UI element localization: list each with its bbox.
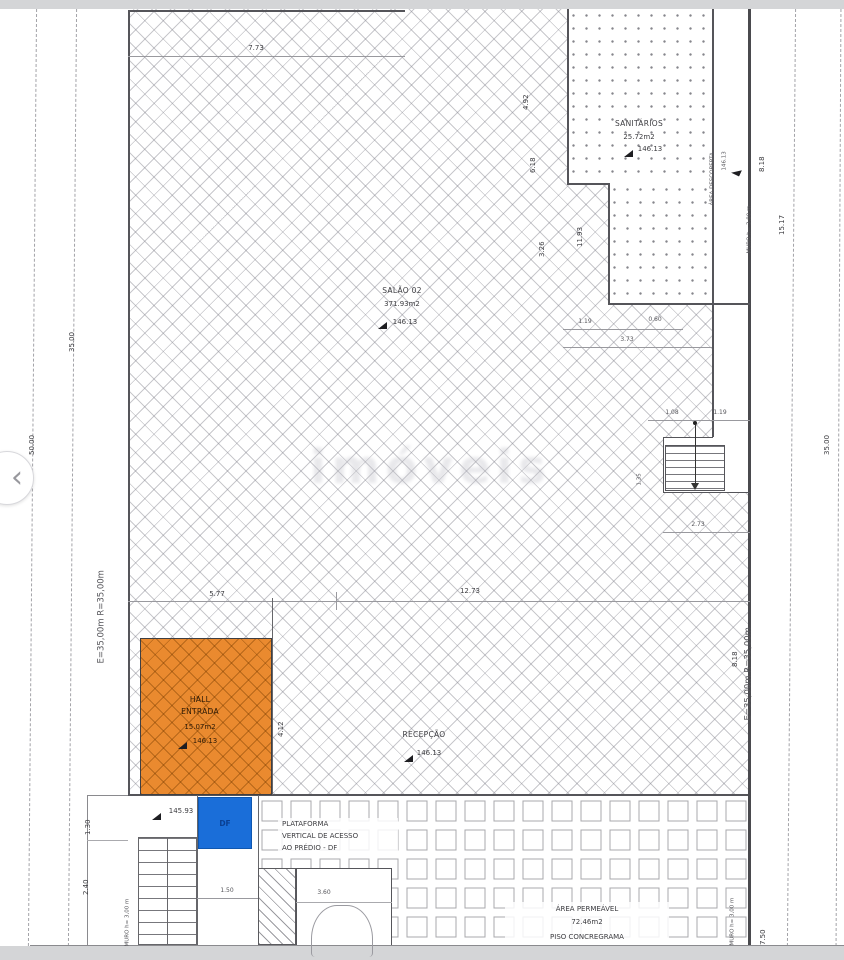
wall-landing-top [663,437,713,438]
sanitarios-floor-dots-lower [608,183,712,303]
wall-sanitarios-left-lower [608,183,610,303]
dim-3-73: 3.73 [612,337,642,343]
dim-8-18a: 8.18 [759,156,766,172]
lot-dim-left-inner: 35.00 [69,332,76,352]
dim-1-35: 1.35 [638,473,644,485]
dimline-108-119 [648,420,750,421]
level-recepcao: 146.13 [414,750,444,757]
dim-1-50: 1.50 [212,888,242,894]
dim-1-08: 1.08 [658,410,686,416]
access-ramp [258,868,296,945]
muro-label-bottom-right: MURO h= 3,00 m [731,898,737,946]
wall-sanitarios-jog [567,183,609,185]
muro-label-top: MURO h= 3,00 m [748,206,754,254]
dim-7-73: 7.73 [236,45,276,52]
platform-df-label: DF [219,819,230,828]
level-sanitarios: 146.13 [635,146,665,153]
dimline-150 [197,898,258,899]
watermark: imóveis [310,440,552,494]
boundary-label-left: E=35,00m R=35,00m [98,570,107,663]
lot-dim-left-outer: 50.00 [29,435,36,455]
lot-line-right-outer [836,9,842,946]
dim-2-73: 2.73 [684,522,712,528]
wall-descoberta-left [712,9,714,437]
dim-5-77: 5.77 [200,591,234,598]
stair-right-arrow-origin [693,421,697,425]
plataforma-label-3: AO PRÉDIO - DF [282,845,337,852]
level-calcada: 145.93 [164,808,198,815]
level-salao: 146.13 [390,319,420,326]
level-descoberta: 146.13 [723,151,729,170]
sanitarios-floor-dots-upper [567,9,712,183]
wall-corridor-left [197,795,198,945]
platform-df: DF [198,797,252,849]
wall-top [128,10,405,12]
lot-line-left-inner [68,9,77,946]
room-area-sanitarios: 25.72m2 [599,134,679,141]
wall-landing-bottom [663,492,750,493]
dimline-373 [563,347,712,348]
dimline-273 [663,532,750,533]
dim-3-60: 3.60 [306,890,342,896]
stair-right-arrowhead-icon [691,483,699,490]
level-hall: 146.13 [190,738,220,745]
wall-left [128,10,130,795]
dim-1-30: 1.30 [85,819,92,835]
lot-line-right-inner [787,9,796,946]
dim-12-73: 12.73 [450,588,490,595]
chevron-left-icon: ‹ [11,463,23,493]
piso-concregrama-label: PISO CONCREGRAMA [497,934,677,941]
wall-sanitarios-left [567,9,569,183]
room-area-hall: 15.07m2 [160,724,240,731]
room-label-sanitarios: SANITÁRIOS [599,120,679,128]
room-area-salao: 371.93m2 [357,301,447,308]
room-label-hall-1: HALL [160,696,240,704]
dimline-middle [128,601,750,602]
room-label-descoberta: ÁREA DESCOBERTA [711,152,717,205]
floorplan-image: 35.00 50.00 35.00 7.73 4.92 6.18 3.26 11… [0,0,844,960]
wall-hall-right [272,598,273,795]
room-label-recepcao: RECEPÇÃO [384,731,464,739]
area-descoberta-floor [712,9,749,437]
dim-8-18b: 8.18 [732,651,739,667]
top-gray-bar [0,0,844,9]
fence-tick-1 [87,795,128,796]
permeavel-label: ÁREA PERMEÁVEL [505,906,669,913]
dim-15-17: 15.17 [779,215,786,235]
room-hall-entrada [140,638,272,795]
parking-midline [296,902,392,903]
room-label-hall-2: ENTRADA [160,708,240,716]
muro-label-bottom-left: MURO h= 3,00 m [126,899,132,947]
dim-3-26: 3.26 [539,241,546,257]
dim-4-12: 4.12 [278,721,285,737]
dim-0-60: 0.60 [640,317,670,323]
dimtick-middle [336,592,337,610]
wall-sanitarios-bottom [608,303,750,305]
dim-2-40: 2.40 [83,879,90,895]
room-label-salao: SALÃO 02 [357,287,447,295]
boundary-label-right: E=35,00m R=35,00m [745,627,754,720]
fence-left [87,795,88,945]
fence-tick-2 [87,840,128,841]
stair-right-arrow-line [695,425,696,485]
wall-landing-left [663,437,664,492]
plataforma-label-1: PLATAFORMA [282,821,328,828]
lot-dim-right-outer: 35.00 [824,435,831,455]
bottom-gray-bar [0,946,844,960]
dimline-119 [563,329,683,330]
dimline-top [128,56,405,57]
dim-11-93: 11.93 [577,227,584,247]
dim-1-19a: 1.19 [570,319,600,325]
dim-7-50: 7.50 [760,929,767,945]
gallery-prev-button[interactable]: ‹ [0,451,34,505]
dim-6-18: 6.18 [530,157,537,173]
stair-entry-rail [167,837,168,945]
dim-4-92: 4.92 [523,94,530,110]
plataforma-label-2: VERTICAL DE ACESSO [282,833,358,840]
lot-line-bottom [30,945,844,946]
dim-1-19b: 1.19 [706,410,734,416]
car-outline [311,905,373,957]
permeavel-area: 72.46m2 [505,919,669,926]
level-flag-calcada-icon [152,813,161,820]
